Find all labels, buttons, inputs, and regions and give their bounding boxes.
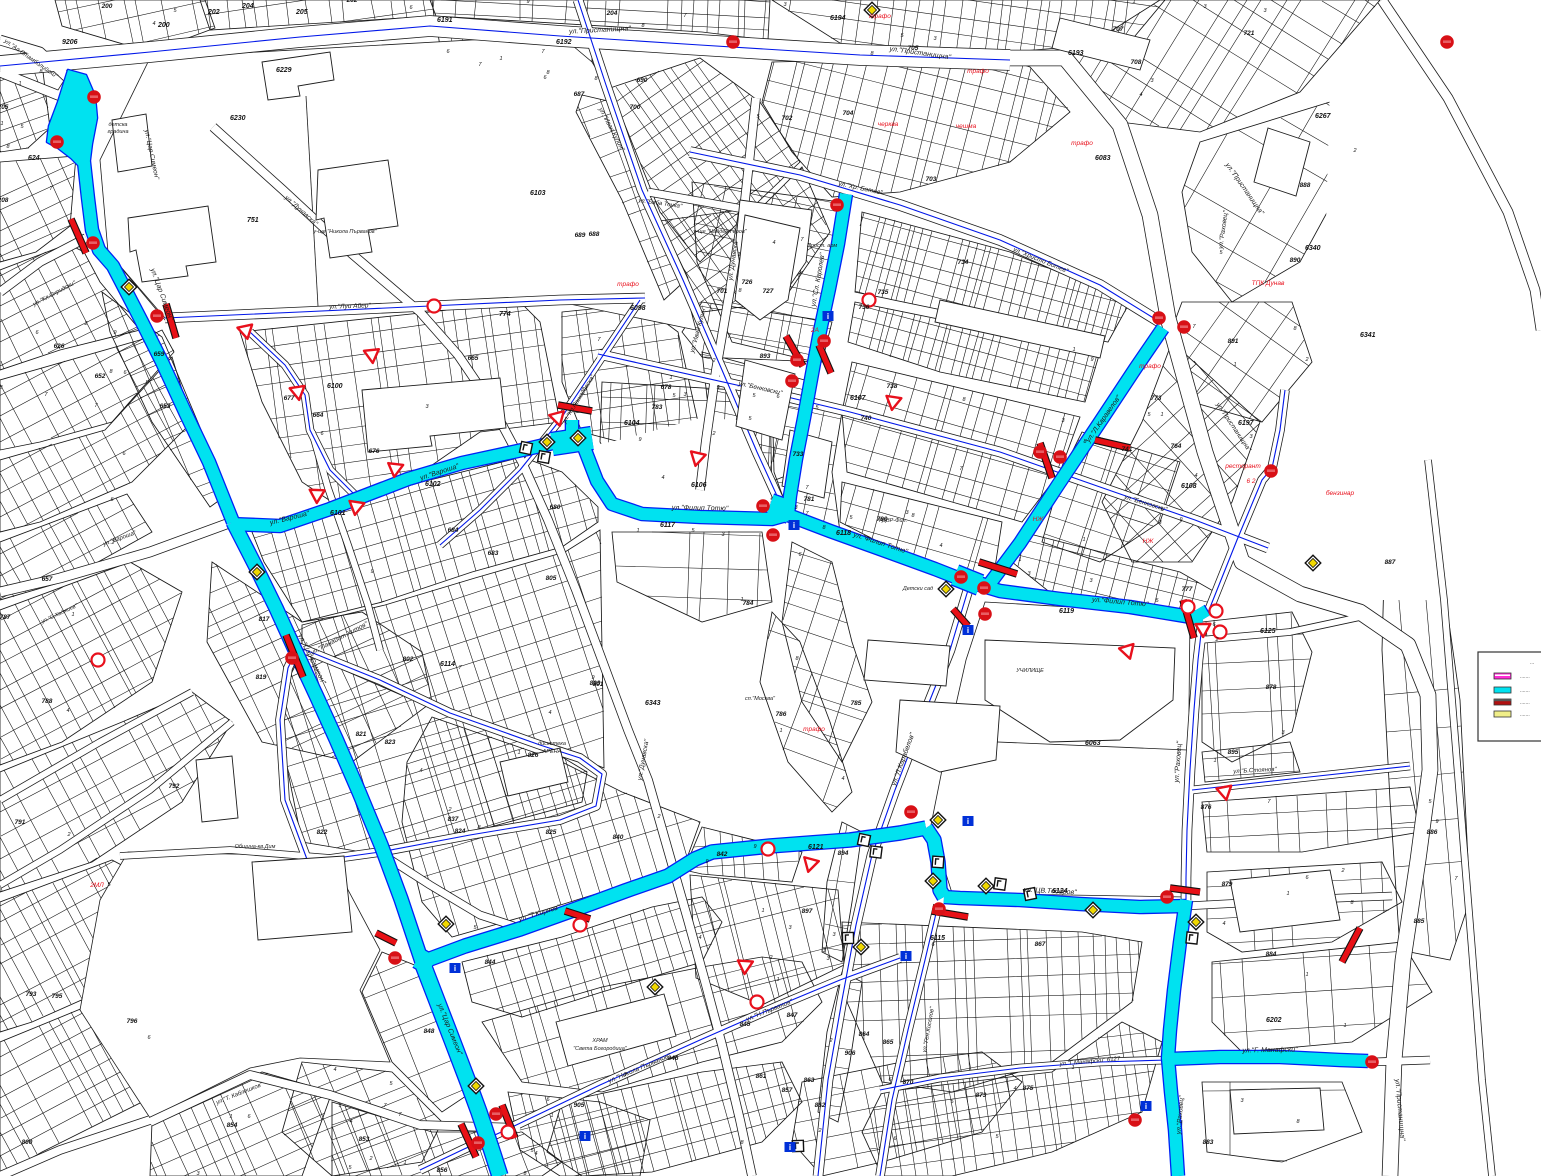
svg-text:4: 4 xyxy=(772,240,775,246)
svg-text:844: 844 xyxy=(485,959,496,966)
svg-text:893: 893 xyxy=(760,353,771,360)
svg-text:1: 1 xyxy=(1233,362,1236,368)
svg-text:1: 1 xyxy=(18,81,21,87)
svg-text:705: 705 xyxy=(908,45,919,52)
svg-text:875: 875 xyxy=(1023,1085,1034,1092)
svg-text:9: 9 xyxy=(591,675,594,681)
svg-text:733: 733 xyxy=(793,451,804,458)
svg-text:1: 1 xyxy=(550,1113,553,1119)
svg-text:6229: 6229 xyxy=(276,67,292,74)
svg-text:6124: 6124 xyxy=(1052,888,1068,895)
svg-text:884: 884 xyxy=(1266,951,1277,958)
svg-text:1: 1 xyxy=(1343,1023,1346,1029)
svg-text:9: 9 xyxy=(705,859,708,865)
svg-text:6107: 6107 xyxy=(850,395,867,402)
svg-text:2МЛ: 2МЛ xyxy=(89,882,104,889)
svg-text:888: 888 xyxy=(1300,182,1311,189)
svg-text:764: 764 xyxy=(1171,443,1182,450)
svg-text:ХРАМ: ХРАМ xyxy=(591,1038,608,1044)
svg-text:857: 857 xyxy=(782,1087,793,1094)
svg-text:1: 1 xyxy=(1305,972,1308,978)
svg-text:6103: 6103 xyxy=(530,190,546,197)
svg-text:9: 9 xyxy=(753,844,756,850)
svg-text:878: 878 xyxy=(1266,684,1277,691)
svg-text:1: 1 xyxy=(1213,758,1216,764)
svg-text:795: 795 xyxy=(52,993,63,1000)
svg-text:862: 862 xyxy=(815,1102,826,1109)
svg-text:886: 886 xyxy=(1427,829,1438,836)
svg-text:6101: 6101 xyxy=(330,510,346,517)
svg-text:i: i xyxy=(1145,1102,1147,1111)
svg-text:6193: 6193 xyxy=(1068,50,1084,57)
svg-text:6100: 6100 xyxy=(327,383,343,390)
svg-text:837: 837 xyxy=(448,816,459,823)
svg-text:ул."Филип Тотю": ул."Филип Тотю" xyxy=(671,504,729,512)
svg-text:4: 4 xyxy=(548,710,551,716)
svg-text:6117: 6117 xyxy=(660,522,676,529)
svg-text:2: 2 xyxy=(1340,868,1344,874)
svg-text:863: 863 xyxy=(804,1077,815,1084)
svg-text:202: 202 xyxy=(346,0,358,4)
svg-text:822: 822 xyxy=(317,829,328,836)
svg-text:796: 796 xyxy=(127,1018,138,1025)
svg-text:741: 741 xyxy=(1122,446,1133,453)
svg-text:i: i xyxy=(584,1132,586,1141)
svg-text:сп."Москва": сп."Москва" xyxy=(745,696,776,702)
svg-text:4: 4 xyxy=(333,1067,336,1073)
svg-text:i: i xyxy=(793,521,795,530)
svg-text:678: 678 xyxy=(661,384,672,391)
svg-text:702: 702 xyxy=(782,115,793,122)
svg-text:690: 690 xyxy=(637,77,648,84)
svg-text:793: 793 xyxy=(26,991,37,998)
svg-text:1: 1 xyxy=(1072,347,1075,353)
svg-text:6121: 6121 xyxy=(808,844,824,851)
svg-text:Детски сад: Детски сад xyxy=(902,586,933,592)
svg-text:848: 848 xyxy=(424,1028,435,1035)
svg-text:i: i xyxy=(967,817,969,826)
svg-text:2: 2 xyxy=(711,358,715,364)
svg-text:817: 817 xyxy=(259,616,270,623)
svg-text:6063: 6063 xyxy=(1085,740,1101,747)
svg-text:208: 208 xyxy=(0,197,9,204)
svg-text:трафо: трафо xyxy=(1139,363,1161,370)
svg-text:9: 9 xyxy=(716,385,719,391)
svg-text:2А: 2А xyxy=(810,327,819,334)
svg-text:1: 1 xyxy=(71,612,74,618)
svg-text:6102: 6102 xyxy=(425,481,441,488)
svg-text:688: 688 xyxy=(589,231,600,238)
svg-text:i: i xyxy=(905,952,907,961)
svg-text:687: 687 xyxy=(574,91,585,98)
svg-text:708: 708 xyxy=(1131,59,1142,66)
svg-text:6197: 6197 xyxy=(1238,420,1255,427)
svg-text:854: 854 xyxy=(227,1122,238,1129)
svg-text:659: 659 xyxy=(154,351,165,358)
svg-text:2: 2 xyxy=(1352,148,1356,154)
svg-text:861: 861 xyxy=(756,1073,767,1080)
svg-text:1: 1 xyxy=(1018,557,1021,563)
svg-text:664: 664 xyxy=(313,412,324,419)
svg-text:1: 1 xyxy=(517,750,520,756)
svg-text:2: 2 xyxy=(828,1038,832,1044)
svg-text:847: 847 xyxy=(787,1012,798,1019)
svg-text:738: 738 xyxy=(887,383,898,390)
svg-text:876: 876 xyxy=(1201,804,1212,811)
svg-text:1: 1 xyxy=(1132,0,1135,5)
svg-text:740: 740 xyxy=(861,415,872,422)
svg-text:6125: 6125 xyxy=(1260,628,1276,635)
svg-text:205: 205 xyxy=(295,9,308,16)
svg-text:9: 9 xyxy=(638,437,641,443)
svg-text:1: 1 xyxy=(669,375,672,381)
svg-text:4: 4 xyxy=(152,21,155,27)
svg-text:детска: детска xyxy=(109,122,128,128)
svg-text:Община-кв.Дим: Община-кв.Дим xyxy=(235,844,276,850)
svg-text:6194: 6194 xyxy=(830,15,846,22)
svg-text:трафо: трафо xyxy=(869,13,891,20)
svg-text:680: 680 xyxy=(550,504,561,511)
svg-text:1: 1 xyxy=(761,908,764,914)
svg-text:890: 890 xyxy=(1290,257,1301,264)
svg-text:ул."Г. Манафски": ул."Г. Манафски" xyxy=(1241,1047,1298,1055)
svg-text:200: 200 xyxy=(101,3,113,10)
svg-text:787: 787 xyxy=(0,614,11,621)
svg-text:4: 4 xyxy=(66,708,69,714)
svg-text:трафо: трафо xyxy=(803,726,825,733)
svg-text:707: 707 xyxy=(1113,26,1124,33)
svg-text:2: 2 xyxy=(768,955,772,961)
svg-text:703: 703 xyxy=(926,176,937,183)
svg-text:734: 734 xyxy=(958,259,969,266)
svg-text:792: 792 xyxy=(169,783,180,790)
svg-text:9: 9 xyxy=(113,330,116,336)
svg-text:i: i xyxy=(454,964,456,973)
svg-text:624: 624 xyxy=(28,155,40,162)
svg-text:783: 783 xyxy=(652,404,663,411)
svg-text:785: 785 xyxy=(851,700,862,707)
svg-text:751: 751 xyxy=(247,217,259,224)
svg-text:4: 4 xyxy=(1013,1086,1016,1092)
svg-text:826: 826 xyxy=(528,752,539,759)
svg-text:2: 2 xyxy=(83,321,87,327)
svg-text:885: 885 xyxy=(1414,918,1425,925)
svg-text:870: 870 xyxy=(903,1079,914,1086)
svg-text:774: 774 xyxy=(499,311,511,318)
svg-text:АРЕНА: АРЕНА xyxy=(542,749,562,755)
svg-text:781: 781 xyxy=(804,496,815,503)
svg-text:784: 784 xyxy=(743,600,754,607)
svg-text:6340: 6340 xyxy=(1305,245,1321,252)
svg-text:дискотека: дискотека xyxy=(538,741,566,747)
svg-text:786: 786 xyxy=(776,711,787,718)
svg-text:1: 1 xyxy=(403,1160,406,1166)
svg-text:653: 653 xyxy=(160,403,171,410)
svg-text:4: 4 xyxy=(1139,92,1142,98)
svg-text:1: 1 xyxy=(1071,1065,1074,1071)
svg-text:1: 1 xyxy=(1286,891,1289,897)
svg-text:трафо: трафо xyxy=(1071,140,1093,147)
svg-text:бензинар: бензинар xyxy=(1326,489,1355,497)
svg-text:894: 894 xyxy=(838,850,849,857)
svg-text:4: 4 xyxy=(661,475,664,481)
svg-text:842: 842 xyxy=(717,851,728,858)
svg-text:873: 873 xyxy=(976,1092,987,1099)
svg-text:трафо: трафо xyxy=(967,68,989,75)
svg-text:791: 791 xyxy=(15,819,26,826)
svg-text:701: 701 xyxy=(717,288,728,295)
svg-text:1: 1 xyxy=(338,1103,341,1109)
svg-text:9: 9 xyxy=(623,1072,626,1078)
svg-text:9: 9 xyxy=(1090,357,1093,363)
svg-text:2: 2 xyxy=(1214,637,1218,643)
svg-text:2: 2 xyxy=(711,431,715,437)
svg-text:2: 2 xyxy=(1304,357,1308,363)
svg-text:4: 4 xyxy=(1222,921,1225,927)
svg-text:845: 845 xyxy=(740,1021,751,1028)
svg-text:788: 788 xyxy=(42,698,53,705)
svg-text:6083: 6083 xyxy=(1095,155,1111,162)
svg-text:2: 2 xyxy=(656,814,660,820)
svg-text:824: 824 xyxy=(455,828,466,835)
svg-text:4: 4 xyxy=(534,1151,537,1157)
svg-text:202: 202 xyxy=(207,9,220,16)
svg-text:657: 657 xyxy=(42,576,53,583)
svg-text:НЖ: НЖ xyxy=(1033,516,1045,523)
svg-text:805: 805 xyxy=(546,575,557,582)
svg-text:853: 853 xyxy=(359,1136,370,1143)
svg-text:1: 1 xyxy=(776,977,779,983)
svg-text:НЖ: НЖ xyxy=(1143,538,1155,545)
svg-text:1: 1 xyxy=(1082,537,1085,543)
svg-text:906: 906 xyxy=(845,1050,856,1057)
svg-text:773: 773 xyxy=(1151,395,1162,402)
svg-text:6191: 6191 xyxy=(437,17,453,24)
svg-text:4: 4 xyxy=(1194,473,1197,479)
svg-text:727: 727 xyxy=(763,288,774,295)
svg-text:Прист. арм: Прист. арм xyxy=(807,243,837,249)
svg-text:ТПК Дунав: ТПК Дунав xyxy=(1252,280,1285,287)
svg-text:.......: ....... xyxy=(1520,688,1530,694)
svg-text:6192: 6192 xyxy=(556,39,572,46)
svg-text:6202: 6202 xyxy=(1266,1017,1282,1024)
svg-text:897: 897 xyxy=(802,908,813,915)
svg-text:204: 204 xyxy=(606,10,618,17)
svg-text:825: 825 xyxy=(546,829,557,836)
svg-text:6115: 6115 xyxy=(930,935,945,942)
svg-text:683: 683 xyxy=(488,550,499,557)
svg-text:9: 9 xyxy=(1179,517,1182,523)
svg-text:6098: 6098 xyxy=(630,305,646,312)
svg-text:867: 867 xyxy=(1035,941,1046,948)
svg-text:777: 777 xyxy=(1182,586,1193,593)
svg-text:1: 1 xyxy=(229,1114,232,1120)
svg-text:i: i xyxy=(967,626,969,635)
svg-text:1: 1 xyxy=(779,728,782,734)
svg-text:726: 726 xyxy=(742,279,753,286)
svg-text:800: 800 xyxy=(22,1139,33,1146)
svg-text:6341: 6341 xyxy=(1360,332,1376,339)
svg-text:891: 891 xyxy=(1228,338,1239,345)
svg-text:846: 846 xyxy=(668,1055,679,1062)
svg-text:4: 4 xyxy=(698,935,701,941)
svg-text:9: 9 xyxy=(526,0,529,5)
svg-text:204: 204 xyxy=(241,3,254,10)
svg-text:4: 4 xyxy=(841,776,844,782)
svg-text:4: 4 xyxy=(419,768,422,774)
svg-text:205: 205 xyxy=(0,104,9,111)
svg-text:1: 1 xyxy=(0,121,3,127)
svg-text:2: 2 xyxy=(817,1128,821,1134)
svg-text:2: 2 xyxy=(66,832,70,838)
svg-text:i: i xyxy=(789,1143,791,1152)
svg-text:1: 1 xyxy=(740,597,743,603)
svg-text:700: 700 xyxy=(630,104,641,111)
svg-text:1: 1 xyxy=(636,528,639,534)
svg-text:6114: 6114 xyxy=(440,661,455,668)
svg-text:895: 895 xyxy=(1228,749,1239,756)
svg-text:802: 802 xyxy=(403,656,414,663)
svg-text:6119: 6119 xyxy=(1059,608,1074,615)
svg-text:865: 865 xyxy=(883,1039,894,1046)
svg-text:823: 823 xyxy=(385,739,396,746)
svg-text:6106: 6106 xyxy=(691,482,707,489)
svg-text:1: 1 xyxy=(1160,412,1163,418)
svg-text:887: 887 xyxy=(1385,559,1396,566)
svg-text:трафо: трафо xyxy=(617,281,639,288)
svg-text:6104: 6104 xyxy=(624,420,640,427)
svg-text:.......: ....... xyxy=(1520,674,1530,680)
svg-text:721: 721 xyxy=(1244,30,1255,37)
svg-text:821: 821 xyxy=(356,731,367,738)
svg-text:864: 864 xyxy=(859,1031,870,1038)
svg-text:879: 879 xyxy=(1222,881,1233,888)
svg-text:черква: черква xyxy=(878,121,899,128)
svg-text:"Света Богородица": "Света Богородица" xyxy=(573,1046,628,1052)
svg-text:у-ще "Найден Геров": у-ще "Найден Геров" xyxy=(692,228,747,235)
svg-text:684: 684 xyxy=(448,527,459,534)
svg-text:677: 677 xyxy=(284,395,295,402)
svg-text:626: 626 xyxy=(54,343,65,350)
svg-text:6267: 6267 xyxy=(1315,113,1332,120)
svg-text:ул."Луи Айер": ул."Луи Айер" xyxy=(328,301,372,311)
svg-text:905: 905 xyxy=(574,1102,585,1109)
svg-text:6118: 6118 xyxy=(836,530,851,537)
svg-text:6108: 6108 xyxy=(1181,483,1197,490)
svg-text:4: 4 xyxy=(349,1119,352,1125)
svg-text:736: 736 xyxy=(859,304,870,311)
svg-text:6343: 6343 xyxy=(645,700,661,707)
svg-text:1: 1 xyxy=(737,252,740,258)
svg-text:676: 676 xyxy=(369,448,380,455)
svg-text:1: 1 xyxy=(499,56,502,62)
svg-text:819: 819 xyxy=(256,674,267,681)
svg-text:6230: 6230 xyxy=(230,115,246,122)
svg-text:...: ... xyxy=(1530,660,1534,666)
svg-text:6 2: 6 2 xyxy=(1246,478,1255,485)
svg-text:704: 704 xyxy=(843,110,854,117)
svg-text:i: i xyxy=(827,312,829,321)
svg-text:200: 200 xyxy=(157,22,170,29)
svg-text:689: 689 xyxy=(575,232,586,239)
svg-text:РДВР-Фил.: РДВР-Фил. xyxy=(879,518,907,524)
svg-text:9: 9 xyxy=(1435,819,1438,825)
svg-text:735: 735 xyxy=(878,289,889,296)
svg-text:665: 665 xyxy=(468,355,479,362)
svg-text:4: 4 xyxy=(939,543,942,549)
svg-text:840: 840 xyxy=(613,834,624,841)
svg-text:ресторант: ресторант xyxy=(1224,463,1261,470)
svg-text:9206: 9206 xyxy=(62,39,78,46)
svg-text:.......: ....... xyxy=(1520,700,1530,706)
svg-text:652: 652 xyxy=(95,373,106,380)
svg-text:чешма: чешма xyxy=(956,123,977,130)
svg-text:.......: ....... xyxy=(1520,712,1530,718)
svg-text:9: 9 xyxy=(370,569,373,575)
svg-text:2: 2 xyxy=(368,1156,372,1162)
svg-text:2: 2 xyxy=(110,540,114,546)
svg-text:803: 803 xyxy=(590,680,601,687)
svg-text:2: 2 xyxy=(447,807,451,813)
svg-text:УЧИЛИЩЕ: УЧИЛИЩЕ xyxy=(1015,668,1044,674)
svg-text:градина: градина xyxy=(107,129,128,135)
svg-text:856: 856 xyxy=(437,1167,448,1174)
svg-text:883: 883 xyxy=(1203,1139,1214,1146)
svg-text:у-ще "Никола Първанов": у-ще "Никола Първанов" xyxy=(312,229,377,235)
